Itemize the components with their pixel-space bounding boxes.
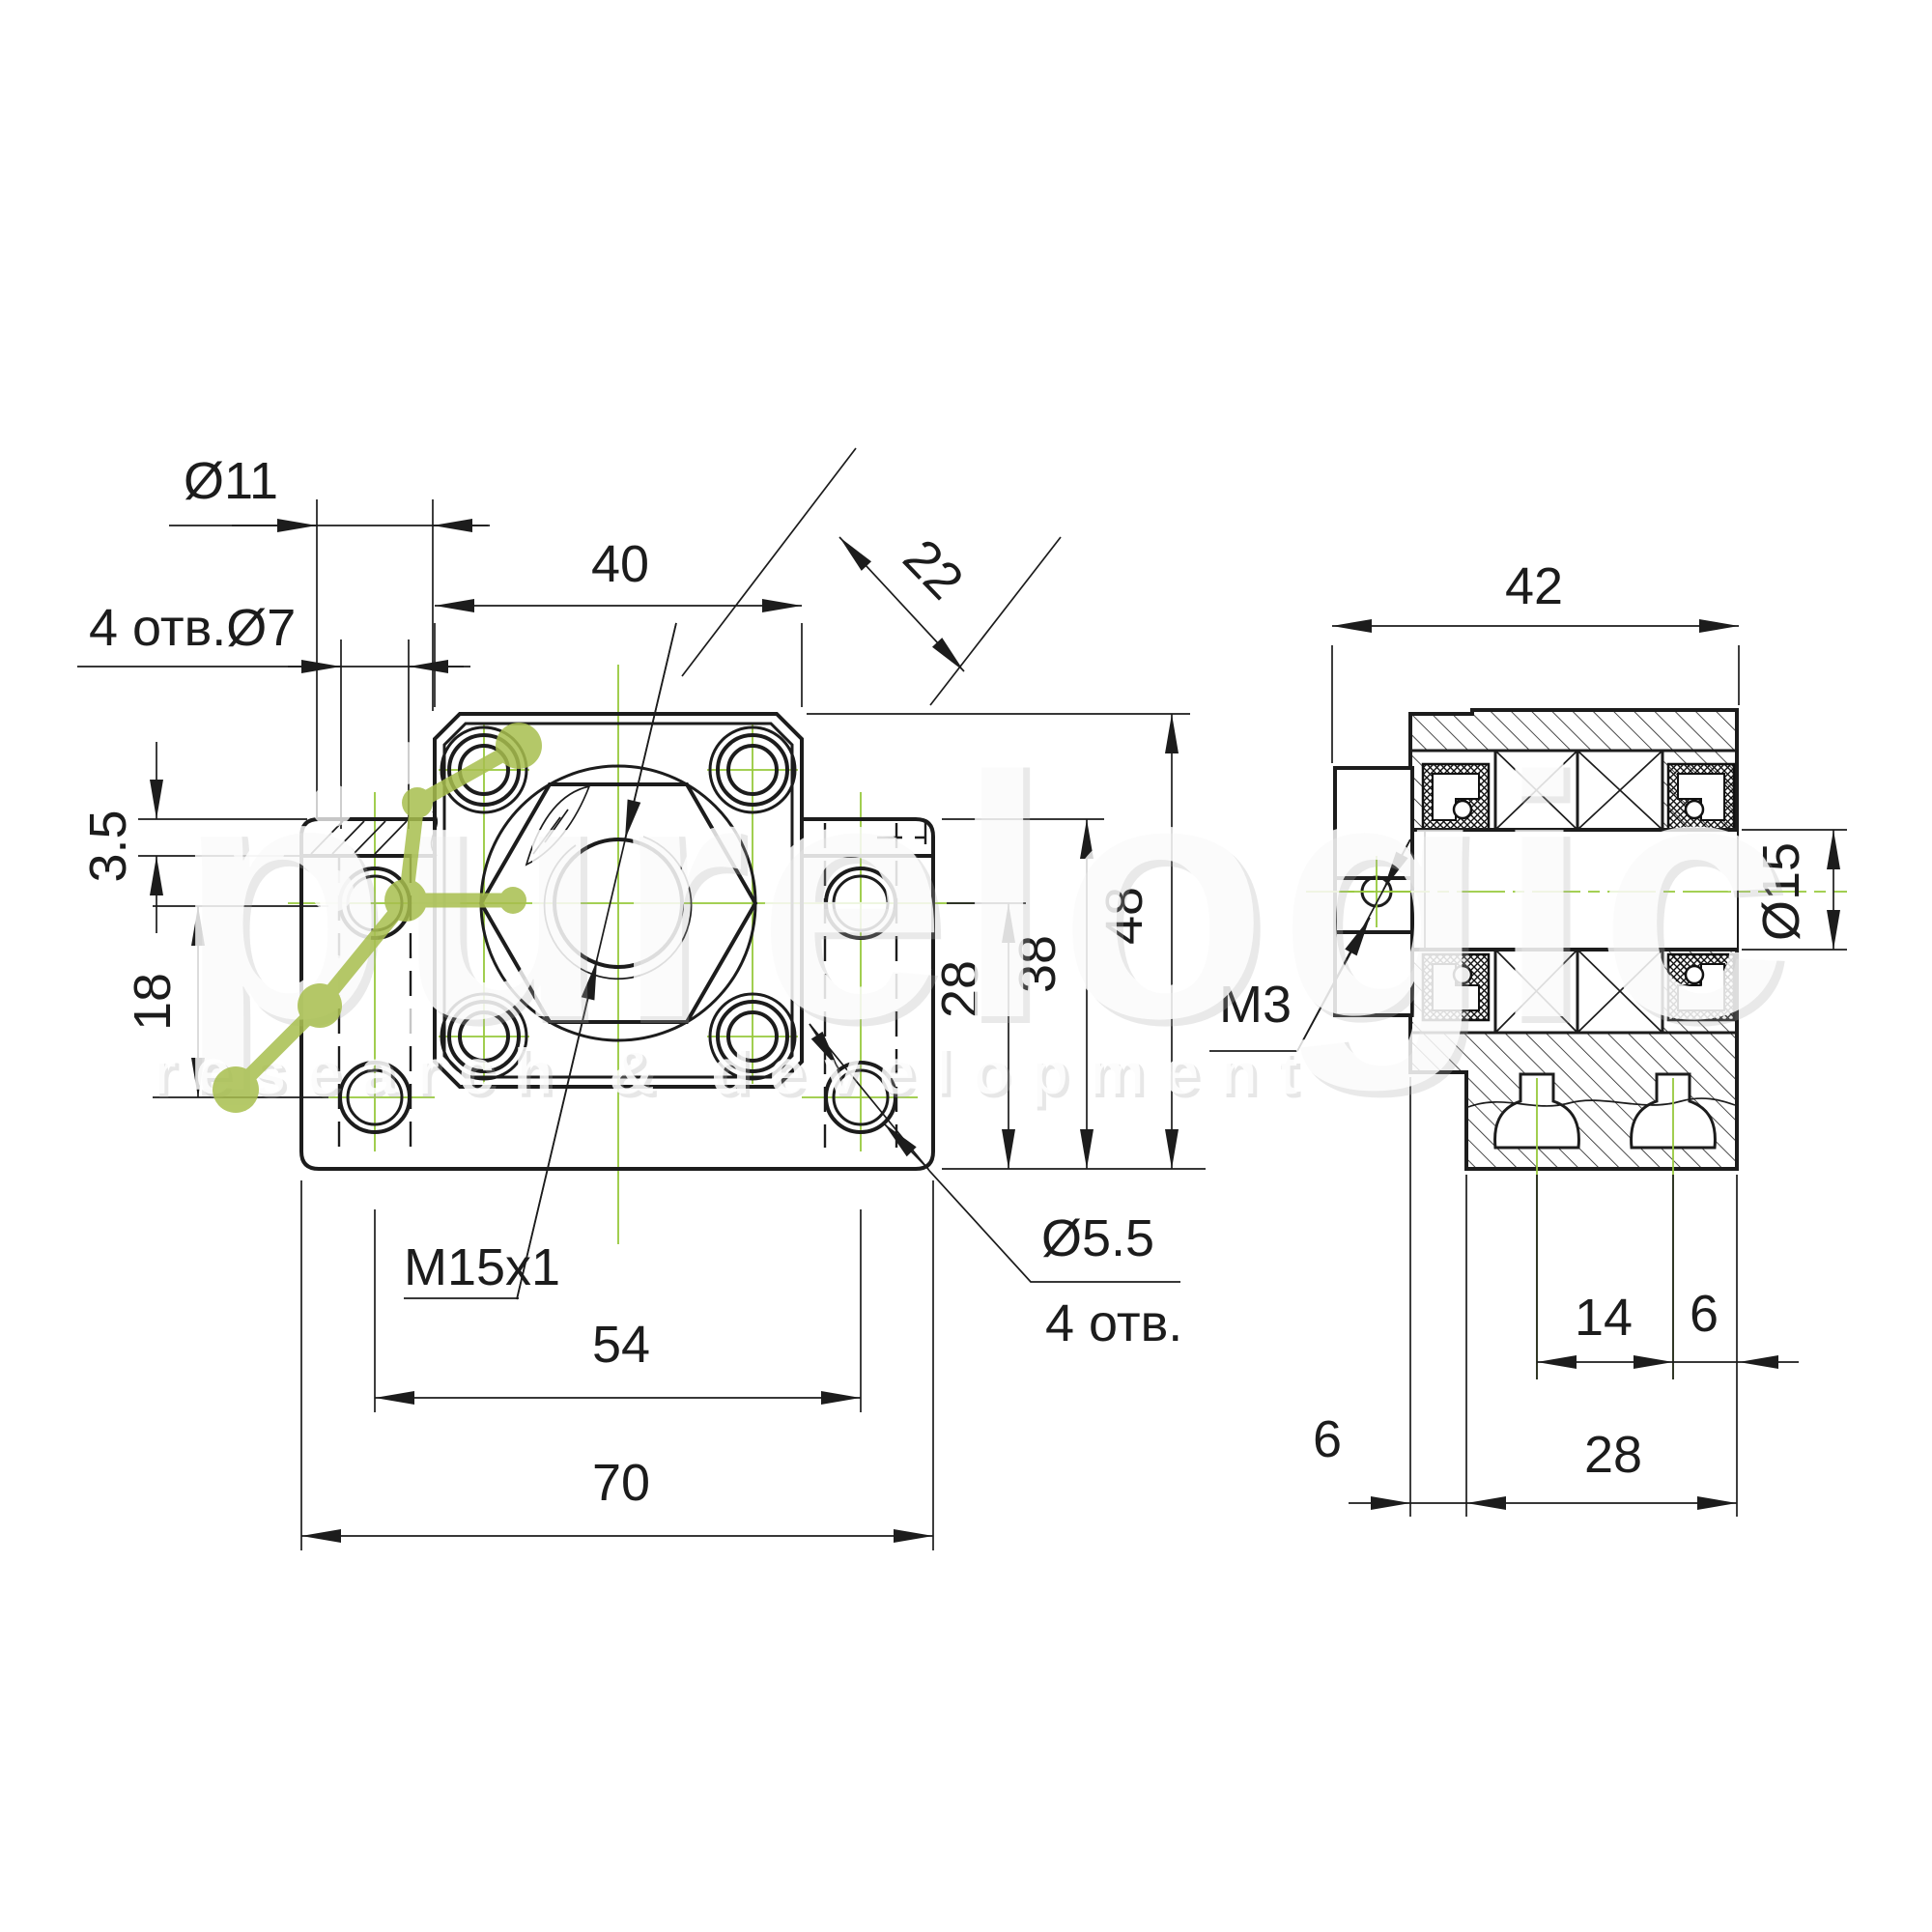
drawing-canvas: Ø11 4 отв.Ø7 40 22 3.5 [0, 0, 1932, 1932]
dim-lip-height-label: 3.5 [79, 810, 137, 882]
dim-base-hole-spacing-h-label: 54 [592, 1316, 650, 1374]
dim-base-holes-label: 4 отв.Ø7 [89, 599, 296, 657]
dim-slot-spacing-label: 14 [1575, 1289, 1633, 1347]
dim-counterbore-label: Ø11 [184, 452, 278, 510]
dim-slot-to-edge-label: 6 [1690, 1285, 1719, 1343]
dim-flange-hole-dia-label: Ø5.5 [1041, 1209, 1154, 1267]
dim-foot-offset-label: 6 [1313, 1410, 1342, 1468]
dim-flange-width-label: 40 [591, 535, 649, 593]
watermark-tagline: research & development [152, 1036, 1318, 1107]
dim-foot-width-label: 28 [1584, 1426, 1642, 1484]
dim-flange-hole-count-label: 4 отв. [1045, 1294, 1182, 1352]
watermark: purelogic purelogic research & developme… [152, 698, 1800, 1113]
dim-base-width-label: 70 [592, 1454, 650, 1512]
dim-body-width-label: 42 [1505, 557, 1563, 615]
dim-thread-label: M15x1 [404, 1238, 560, 1296]
